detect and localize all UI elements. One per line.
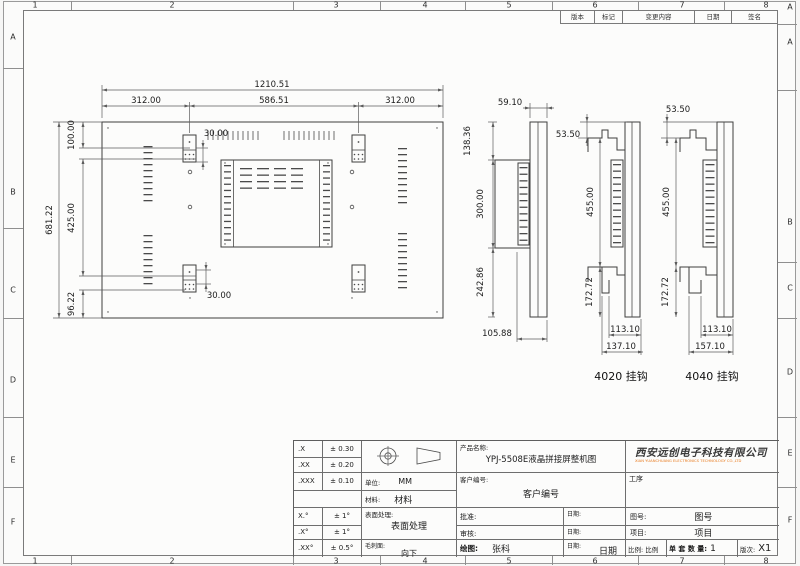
arrowhead: [666, 138, 669, 143]
vent-dash: [613, 210, 621, 211]
vent-dash: [398, 263, 407, 264]
revision-label: 版次:: [738, 544, 755, 554]
projection-symbols-cell: [362, 441, 457, 473]
vent-dash: [398, 166, 407, 167]
arrowhead: [525, 107, 530, 110]
vent-dash: [520, 174, 528, 175]
scale-value: 比例: [645, 544, 658, 554]
vent-dash: [706, 216, 715, 217]
vent-dash: [144, 247, 153, 248]
qty-value: 1: [710, 544, 716, 554]
tolerance-spacer: [294, 491, 362, 508]
bracket-dot: [358, 288, 360, 290]
tolerance-value: ± 0.30: [323, 441, 362, 458]
vent-dash: [613, 184, 621, 185]
checked-cell: 审核:: [457, 526, 564, 540]
company-name-en: XIAN YUANCHUANG ELECTRONICS TECHNOLOGY C…: [635, 459, 741, 463]
tolerance-value: ± 0.5°: [323, 540, 362, 557]
dim-4040-hook-span: 455.00: [662, 187, 672, 217]
vent-dash: [613, 216, 621, 217]
arrowhead: [492, 248, 495, 253]
vent-dash: [224, 208, 231, 209]
vent-dash: [144, 235, 153, 236]
vent-dash: [323, 202, 330, 203]
dim-side-lower: 242.86: [476, 267, 486, 297]
vent-dash: [257, 175, 269, 176]
vent-dash: [240, 175, 252, 176]
customer-no-label: 客户编号:: [457, 473, 625, 484]
arrowhead: [359, 105, 364, 108]
tolerance-label: .X: [294, 441, 323, 458]
arrowhead: [438, 89, 443, 92]
bracket-dot: [358, 141, 360, 143]
panel-dot: [436, 311, 437, 312]
vent-dash: [398, 251, 407, 252]
panel-hole: [188, 205, 192, 209]
dim-total-height: 681.22: [45, 205, 55, 235]
vent-dash: [398, 275, 407, 276]
dim-4040-bottom-gap: 172.72: [661, 277, 671, 307]
vent-dash: [398, 281, 407, 282]
arrowhead: [586, 117, 589, 122]
qty-label: 单 套 数 量:: [667, 544, 707, 554]
title-block: .X ± 0.30 .XX ± 0.20 .XXX ± 0.10 X.° ± 1…: [293, 440, 779, 557]
bracket-dot: [354, 288, 356, 290]
drawing-no-cell: 图号: 图号: [626, 508, 779, 526]
vent-dash: [144, 253, 153, 254]
vent-dash: [323, 196, 330, 197]
arrowhead: [82, 290, 85, 295]
drawn-value: 张科: [492, 542, 510, 555]
vent-dash: [520, 226, 528, 227]
vent-dash: [257, 168, 269, 169]
scale-cell: 比例: 比例: [626, 540, 667, 557]
panel-dot: [327, 162, 328, 163]
arrowhead: [58, 122, 61, 127]
vent-dash: [520, 213, 528, 214]
vent-dash: [323, 177, 330, 178]
vent-dash: [520, 220, 528, 221]
vent-dash: [240, 168, 252, 169]
vent-dash: [224, 196, 231, 197]
arrowhead: [599, 267, 602, 272]
vent-dash: [257, 188, 269, 189]
bracket-dot: [185, 288, 187, 290]
dimension-layer: [53, 85, 733, 355]
dim-left-width: 312.00: [131, 96, 161, 106]
approved-date-cell: 日期:: [564, 508, 626, 526]
arrowhead: [675, 312, 678, 317]
arrowhead: [599, 138, 602, 143]
bracket-dot: [193, 284, 195, 286]
arrowhead: [82, 271, 85, 276]
burr-cell: 毛刺面: 向下: [362, 540, 457, 557]
arrowhead: [82, 122, 85, 127]
vent-dash: [144, 170, 153, 171]
arrowhead: [666, 117, 669, 122]
hook-profile-4040-top: [680, 130, 717, 152]
vent-dash: [291, 181, 303, 182]
vent-dash: [323, 215, 330, 216]
panel-hole: [350, 205, 354, 209]
bracket-dot: [193, 154, 195, 156]
arrowhead: [492, 122, 495, 127]
vent-dash: [144, 188, 153, 189]
arrowhead: [205, 284, 208, 289]
bracket-dot: [358, 284, 360, 286]
arrowhead: [205, 265, 208, 270]
vent-dash: [224, 202, 231, 203]
arrowhead: [82, 313, 85, 318]
tolerance-label: .XXX: [294, 473, 323, 491]
drawn-date-cell: 日期: 日期: [564, 540, 626, 557]
vent-dash: [613, 236, 621, 237]
tolerance-label: X.°: [294, 508, 323, 526]
arrowhead: [517, 338, 522, 341]
dim-bottom-offset: 96.22: [67, 292, 77, 316]
panel-hole: [188, 170, 192, 174]
company-name: 西安远创电子科技有限公司: [635, 445, 779, 460]
arrowhead: [492, 312, 495, 317]
vent-dash: [144, 277, 153, 278]
vent-dash: [274, 168, 286, 169]
vent-dash: [224, 215, 231, 216]
tolerance-label: .X°: [294, 526, 323, 540]
vent-dash: [398, 154, 407, 155]
arrowhead: [547, 107, 552, 110]
approved-label: 批准:: [457, 508, 563, 522]
dim-total-depth: 105.88: [482, 329, 512, 339]
vent-dash: [240, 188, 252, 189]
dim-4040-top-gap: 53.50: [666, 105, 690, 115]
panel-dot: [107, 311, 108, 312]
bracket-dot: [193, 288, 195, 290]
bracket-dot: [189, 271, 191, 273]
date-label: 日期:: [564, 526, 625, 536]
vent-dash: [323, 171, 330, 172]
hook-profile-4020-top: [588, 130, 625, 152]
project-value: 项目: [694, 526, 712, 539]
vent-dash: [144, 265, 153, 266]
dim-total-width: 1210.51: [254, 80, 289, 90]
arrowhead: [542, 338, 547, 341]
label-hook-4020: 4020 挂钩: [594, 369, 648, 383]
vent-dash: [613, 223, 621, 224]
panel-dot: [351, 297, 352, 298]
vent-dash: [613, 171, 621, 172]
dimension-text-layer: 1210.51 312.00 586.51 312.00 30.00 30.00…: [45, 80, 739, 383]
process-cell: 工序: [626, 473, 779, 508]
vent-dash: [398, 202, 407, 203]
customer-no-cell: 客户编号: 客户编号: [457, 473, 626, 508]
dim-center-width: 586.51: [259, 96, 289, 106]
vent-dash: [398, 287, 407, 288]
vent-dash: [224, 227, 231, 228]
bracket-dot: [354, 284, 356, 286]
tolerance-value: ± 0.20: [323, 458, 362, 473]
dim-hook-offset-top: 30.00: [204, 129, 228, 139]
bracket-dot: [362, 288, 364, 290]
vent-dash: [706, 210, 715, 211]
dim-4040-inner-width: 113.10: [702, 325, 732, 335]
bracket-dot: [358, 154, 360, 156]
mount-bracket: [352, 265, 365, 292]
dim-4020-hook-span: 455.00: [586, 187, 596, 217]
tolerance-value: ± 1°: [323, 526, 362, 540]
surface-value: 表面处理: [362, 519, 456, 532]
drawing-sheet: 12345678 12345678 ABCDEF AABCDEF 版本 标记 变…: [0, 0, 800, 566]
bracket-dot: [354, 154, 356, 156]
vent-dash: [398, 257, 407, 258]
scale-label: 比例:: [626, 544, 643, 554]
vent-dash: [323, 165, 330, 166]
arrowhead: [58, 313, 61, 318]
vent-dash: [144, 194, 153, 195]
vent-dash: [520, 233, 528, 234]
surface-label: 表面处理:: [362, 508, 456, 519]
geometry-layer: [102, 122, 733, 318]
product-name-cell: 产品名称: YPJ-5508E液晶拼接屏整机图: [457, 441, 626, 473]
panel-outline: [625, 122, 640, 317]
company-logo-cell: 西安远创电子科技有限公司 XIAN YUANCHUANG ELECTRONICS…: [626, 441, 779, 473]
vent-dash: [520, 193, 528, 194]
arrowhead: [185, 105, 190, 108]
project-label: 项目:: [626, 528, 646, 538]
vent-dash: [613, 177, 621, 178]
vent-dash: [398, 239, 407, 240]
vent-dash: [706, 236, 715, 237]
mount-bracket: [352, 135, 365, 162]
vent-dash: [291, 188, 303, 189]
arrowhead: [438, 105, 443, 108]
date-label: 日期:: [564, 540, 581, 550]
arrowhead: [354, 105, 359, 108]
vent-dash: [274, 181, 286, 182]
arrowhead: [599, 262, 602, 267]
dim-right-width: 312.00: [385, 96, 415, 106]
vent-dash: [323, 227, 330, 228]
vent-dash: [144, 146, 153, 147]
arrowhead: [675, 138, 678, 143]
panel-outline: [495, 160, 530, 248]
panel-outline: [530, 122, 547, 317]
unit-value: MM: [398, 477, 412, 486]
arrowhead: [190, 105, 195, 108]
vent-dash: [613, 203, 621, 204]
arrowhead: [638, 351, 643, 354]
vent-dash: [144, 200, 153, 201]
vent-dash: [613, 229, 621, 230]
tolerance-value: ± 0.10: [323, 473, 362, 491]
bracket-dot: [362, 158, 364, 160]
vent-dash: [323, 233, 330, 234]
arrowhead: [675, 267, 678, 272]
panel-dot: [327, 243, 328, 244]
vent-dash: [144, 176, 153, 177]
label-hook-4040: 4040 挂钩: [685, 369, 739, 383]
vent-dash: [706, 164, 715, 165]
vent-dash: [144, 283, 153, 284]
dim-front-depth: 59.10: [498, 98, 522, 108]
material-label: 材料:: [362, 494, 380, 504]
bracket-dot: [354, 158, 356, 160]
vent-dash: [323, 190, 330, 191]
bracket-dot: [185, 284, 187, 286]
arrowhead: [82, 143, 85, 148]
dim-4040-outer-width: 157.10: [695, 342, 725, 352]
vent-dash: [520, 180, 528, 181]
mount-bracket: [183, 265, 196, 292]
panel-outline: [221, 160, 332, 247]
vent-dash: [520, 240, 528, 241]
arrowhead: [202, 143, 205, 148]
vent-dash: [224, 184, 231, 185]
arrowhead: [492, 160, 495, 165]
arrowhead: [202, 162, 205, 167]
checked-label: 审核:: [457, 526, 563, 539]
vent-dash: [706, 203, 715, 204]
qty-cell: 单 套 数 量: 1: [667, 540, 738, 557]
tolerance-value: ± 1°: [323, 508, 362, 526]
checked-date-cell: 日期:: [564, 526, 626, 540]
vent-dash: [706, 197, 715, 198]
vent-dash: [144, 152, 153, 153]
panel-dot: [224, 243, 225, 244]
vent-dash: [144, 271, 153, 272]
vent-dash: [323, 184, 330, 185]
vent-dash: [706, 242, 715, 243]
dim-side-upper: 138.36: [463, 126, 473, 156]
hook-profile-4040-bottom: [680, 267, 717, 293]
process-label: 工序: [626, 473, 779, 484]
dim-4020-bottom-gap: 172.72: [585, 277, 595, 307]
vent-dash: [257, 181, 269, 182]
bracket-dot: [358, 271, 360, 273]
panel-outline: [518, 163, 529, 245]
vent-dash: [274, 188, 286, 189]
bracket-dot: [189, 284, 191, 286]
material-cell: 材料: 材料: [362, 491, 457, 508]
material-value: 材料: [394, 493, 412, 506]
bracket-dot: [362, 154, 364, 156]
panel-outline: [102, 122, 443, 318]
vent-dash: [224, 221, 231, 222]
vent-dash: [224, 165, 231, 166]
bracket-dot: [362, 284, 364, 286]
customer-no-value: 客户编号: [457, 487, 625, 500]
vent-dash: [398, 269, 407, 270]
dim-4020-top-gap: 53.50: [556, 130, 580, 140]
dim-side-box-height: 300.00: [476, 189, 486, 219]
vent-dash: [706, 190, 715, 191]
product-name-label: 产品名称:: [457, 441, 625, 452]
arrowhead: [82, 159, 85, 164]
vent-dash: [398, 160, 407, 161]
vent-dash: [224, 171, 231, 172]
bracket-dot: [189, 154, 191, 156]
vent-dash: [291, 168, 303, 169]
vent-dash: [398, 178, 407, 179]
drawing-no-value: 图号: [694, 510, 712, 523]
projection-symbol-icon: [362, 441, 455, 471]
vent-dash: [706, 171, 715, 172]
panel-dot: [107, 127, 108, 128]
vent-dash: [144, 164, 153, 165]
vent-dash: [224, 233, 231, 234]
panel-hole: [350, 170, 354, 174]
panel-dot: [436, 127, 437, 128]
vent-dash: [706, 184, 715, 185]
vent-dash: [323, 221, 330, 222]
vent-dash: [144, 259, 153, 260]
date-label: 日期:: [564, 508, 625, 518]
vent-dash: [520, 167, 528, 168]
vent-dash: [274, 175, 286, 176]
arrowhead: [675, 262, 678, 267]
tolerance-label: .XX: [294, 458, 323, 473]
tolerance-label: .XX°: [294, 540, 323, 557]
arrowhead: [102, 89, 107, 92]
bracket-dot: [185, 154, 187, 156]
vent-dash: [398, 184, 407, 185]
panel-dot: [189, 297, 190, 298]
vent-dash: [613, 190, 621, 191]
panel-outline: [717, 122, 733, 317]
arrowhead: [102, 105, 107, 108]
vent-dash: [520, 187, 528, 188]
vent-dash: [398, 190, 407, 191]
vent-dash: [520, 207, 528, 208]
drawn-label: 绘图:: [457, 543, 478, 554]
approved-cell: 批准:: [457, 508, 564, 526]
drawn-cell: 绘图: 张科: [457, 540, 564, 557]
vent-dash: [613, 197, 621, 198]
dim-hook-span-main: 425.00: [67, 203, 77, 233]
vent-dash: [323, 208, 330, 209]
vent-dash: [144, 241, 153, 242]
dim-4020-outer-width: 137.10: [606, 342, 636, 352]
date-value: 日期: [599, 544, 617, 557]
vent-dash: [144, 182, 153, 183]
vent-dash: [240, 181, 252, 182]
vent-dash: [706, 177, 715, 178]
arrowhead: [728, 351, 733, 354]
vent-dash: [224, 239, 231, 240]
vent-dash: [706, 223, 715, 224]
vent-dash: [706, 229, 715, 230]
vent-dash: [520, 200, 528, 201]
unit-cell: 单位: MM: [362, 473, 457, 491]
vent-dash: [224, 177, 231, 178]
vent-dash: [398, 245, 407, 246]
vent-dash: [398, 172, 407, 173]
unit-label: 单位:: [362, 477, 380, 487]
panel-dot: [224, 162, 225, 163]
vent-dash: [613, 164, 621, 165]
vent-dash: [291, 175, 303, 176]
arrowhead: [689, 351, 694, 354]
vent-dash: [323, 239, 330, 240]
vent-dash: [398, 148, 407, 149]
vent-dash: [398, 196, 407, 197]
mount-bracket: [183, 135, 196, 162]
arrowhead: [599, 312, 602, 317]
dim-4020-inner-width: 113.10: [610, 325, 640, 335]
bracket-dot: [358, 158, 360, 160]
arrowhead: [492, 243, 495, 248]
revision-cell: 版次: X1: [738, 540, 779, 557]
dim-hook-offset-bottom: 30.00: [207, 291, 231, 301]
